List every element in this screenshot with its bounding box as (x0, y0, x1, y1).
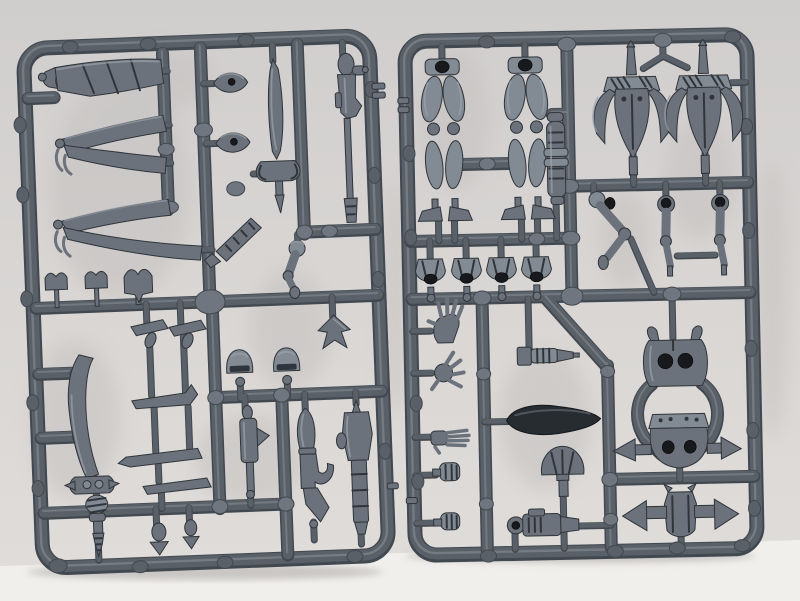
sprue-photo: Photograph of two dark blue-grey plastic… (0, 0, 800, 601)
sprue-photo-canvas (0, 0, 800, 601)
